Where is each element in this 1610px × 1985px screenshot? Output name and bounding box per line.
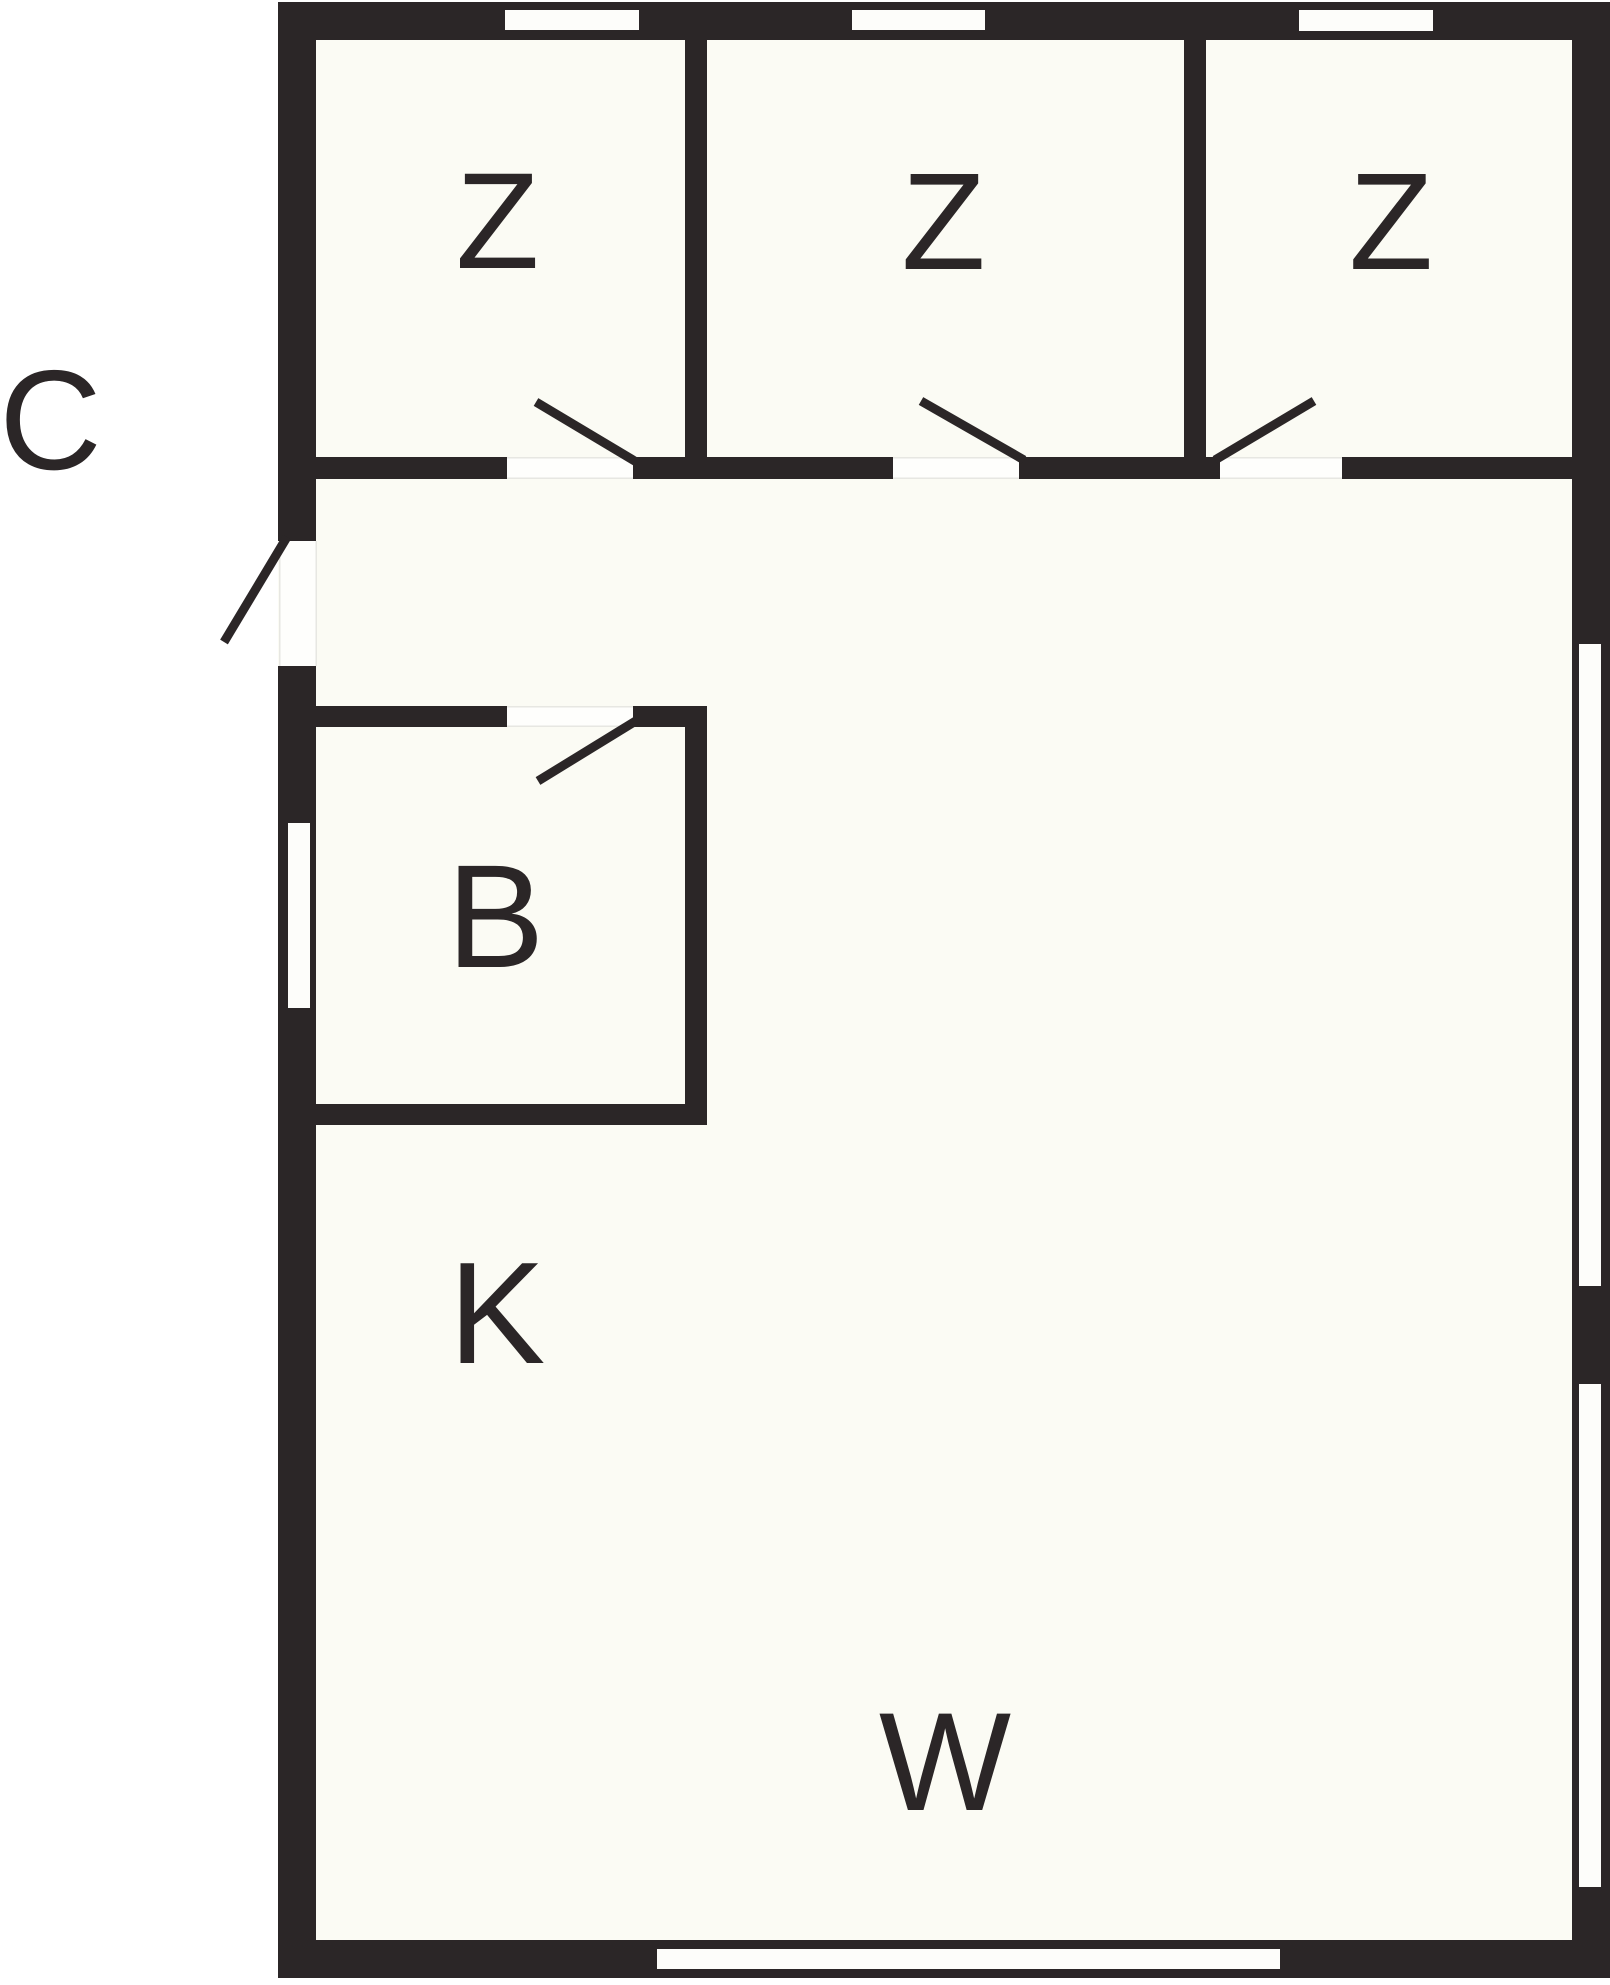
svg-text:W: W [879, 1683, 1011, 1840]
svg-text:Z: Z [901, 145, 985, 299]
svg-text:C: C [0, 341, 102, 500]
svg-text:Z: Z [1349, 145, 1433, 299]
svg-text:B: B [446, 835, 544, 999]
svg-text:Z: Z [456, 145, 540, 298]
svg-text:K: K [449, 1232, 546, 1394]
